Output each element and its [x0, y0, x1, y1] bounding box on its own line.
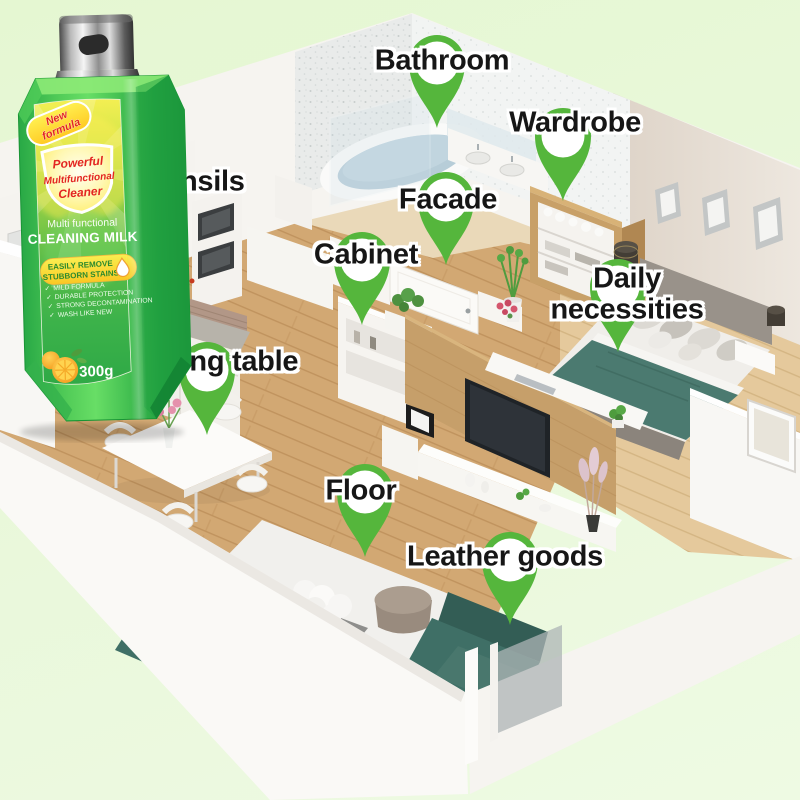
bedside-table	[767, 306, 785, 327]
label-facade: Facade	[399, 185, 497, 216]
stain-pill: EASILY REMOVE STUBBORN STAINS	[40, 253, 137, 285]
label-cabinet: Cabinet	[314, 240, 418, 271]
label-bathroom: Bathroom	[375, 46, 510, 77]
bottle-shadow	[20, 423, 184, 441]
door-handle-icon	[466, 309, 471, 314]
label-floor: Floor	[326, 476, 397, 507]
pouf	[375, 586, 433, 634]
product-scene: Bathroom Wardrobe Kitchen utensils Facad…	[0, 0, 800, 800]
weight-text: 300g	[79, 363, 114, 381]
label-daily-necessities: Daily necessities	[538, 263, 716, 324]
product-bottle: New formula Powerful Multifunctional Cle…	[0, 0, 200, 450]
label-leather-goods: Leather goods	[407, 542, 603, 573]
bottle-cap	[53, 14, 141, 81]
label-wardrobe: Wardrobe	[509, 108, 641, 139]
subtitle: Multi functional	[47, 217, 117, 231]
product-name: CLEANING MILK	[28, 229, 138, 247]
